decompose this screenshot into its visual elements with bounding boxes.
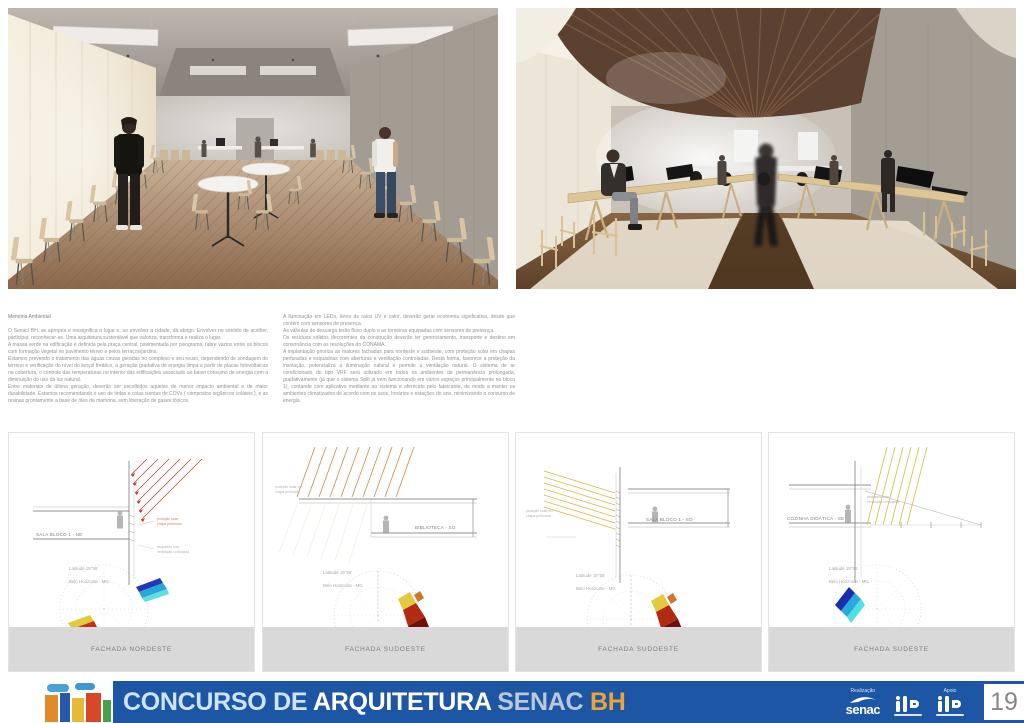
presentation-board: Memória Ambiental O Senac/ BH, se apropr… — [0, 0, 1024, 723]
facade-panel-sudoeste-2: SALA BLOCO 1 - SO proteção solar em chap… — [515, 432, 762, 672]
senac-logo: senac — [846, 704, 880, 716]
facade-label-bar: FACHADA SUDOESTE — [516, 627, 761, 671]
annotation-note: proteção solar em chapa perfurada — [275, 485, 302, 495]
iab-logo-icon — [895, 696, 921, 712]
facade-label-bar: FACHADA SUDOESTE — [263, 627, 508, 671]
latitude-label: Latitude 19°55' Belo Horizonte - MG — [323, 563, 363, 589]
realizacao-block: Realização senac — [846, 688, 880, 716]
memoria-body: O Senac/ BH, se apropria e ressignifica … — [8, 328, 268, 405]
title-senac: SENAC — [491, 688, 590, 716]
page-number-box: 19 — [984, 684, 1024, 720]
competition-logo-collage — [45, 682, 111, 722]
iab-logo-icon — [937, 696, 963, 712]
apoio-label: Apoio — [944, 688, 957, 695]
realizacao-label: Realização — [850, 688, 875, 695]
title-concurso-de: CONCURSO DE — [123, 688, 313, 716]
footer-banner: CONCURSO DE ARQUITETURA SENAC BH Realiza… — [0, 681, 1024, 723]
memoria-title: Memória Ambiental — [8, 314, 268, 321]
section-room-label: BIBLIOTECA - SO — [415, 525, 456, 530]
render-study-room — [516, 8, 1016, 289]
apoio-block-2: Apoio — [936, 688, 964, 717]
facade-label: FACHADA SUDESTE — [854, 646, 929, 653]
facade-section-diagram: SALA BLOCO 1 - SO proteção solar em chap… — [516, 433, 761, 627]
latitude-label: Latitude 19°55' Belo Horizonte - MG — [576, 566, 616, 592]
render-multipurpose-room — [8, 8, 498, 289]
sun-rays — [544, 471, 615, 529]
competition-title: CONCURSO DE ARQUITETURA SENAC BH — [123, 681, 625, 723]
facade-label: FACHADA SUDOESTE — [598, 646, 679, 653]
memoria-ambiental-column: Memória Ambiental O Senac/ BH, se apropr… — [8, 307, 268, 412]
facade-section-diagram: SALA BLOCO 1 - NE proteção solar chapa p… — [9, 433, 254, 627]
facade-section-diagram: COZINHA DIDÁTICA - SE esquadria com vent… — [769, 433, 1014, 627]
section-room-label: COZINHA DIDÁTICA - SE — [787, 516, 844, 521]
title-bh: BH — [590, 688, 626, 716]
latitude-label: Latitude 19°55' Belo Horizonte - MG — [829, 559, 869, 585]
facade-section-diagram: BIBLIOTECA - SO proteção solar em chapa … — [263, 433, 508, 627]
facade-panel-nordeste: SALA BLOCO 1 - NE proteção solar chapa p… — [8, 432, 255, 672]
facade-label-bar: FACHADA SUDESTE — [769, 627, 1014, 671]
facade-panel-sudoeste-1: BIBLIOTECA - SO proteção solar em chapa … — [262, 432, 509, 672]
latitude-label: Latitude 19°55' Belo Horizonte - MG — [69, 559, 109, 585]
facade-label: FACHADA NORDESTE — [91, 646, 172, 653]
annotation-note: proteção solar em chapa perfurada — [526, 509, 553, 519]
render-left-illustration — [8, 8, 498, 289]
render-right-illustration — [516, 8, 1016, 289]
apoio-block-1 — [894, 688, 922, 717]
facade-panel-sudeste: COZINHA DIDÁTICA - SE esquadria com vent… — [768, 432, 1015, 672]
sustentabilidade-body: A iluminação em LEDs, livres de raios UV… — [283, 314, 515, 405]
sun-rays — [867, 447, 927, 525]
page-number: 19 — [990, 688, 1018, 717]
annotation-note: esquadria com ventilação controlada — [157, 545, 189, 555]
title-arquitetura: ARQUITETURA — [313, 688, 491, 716]
competition-logo-box — [0, 681, 113, 723]
annotation-note: proteção solar chapa perfurada — [157, 517, 182, 527]
section-room-label: SALA BLOCO 1 - SO — [646, 517, 693, 522]
sun-rays — [297, 447, 414, 497]
section-room-label: SALA BLOCO 1 - NE — [36, 532, 83, 537]
annotation-note: esquadria com ventilação controlada — [867, 495, 899, 505]
facade-label: FACHADA SUDOESTE — [345, 646, 426, 653]
facade-label-bar: FACHADA NORDESTE — [9, 627, 254, 671]
iab-caption-bar — [936, 714, 964, 717]
iab-caption-bar — [894, 714, 922, 717]
sustentabilidade-column: A iluminação em LEDs, livres de raios UV… — [283, 307, 515, 412]
